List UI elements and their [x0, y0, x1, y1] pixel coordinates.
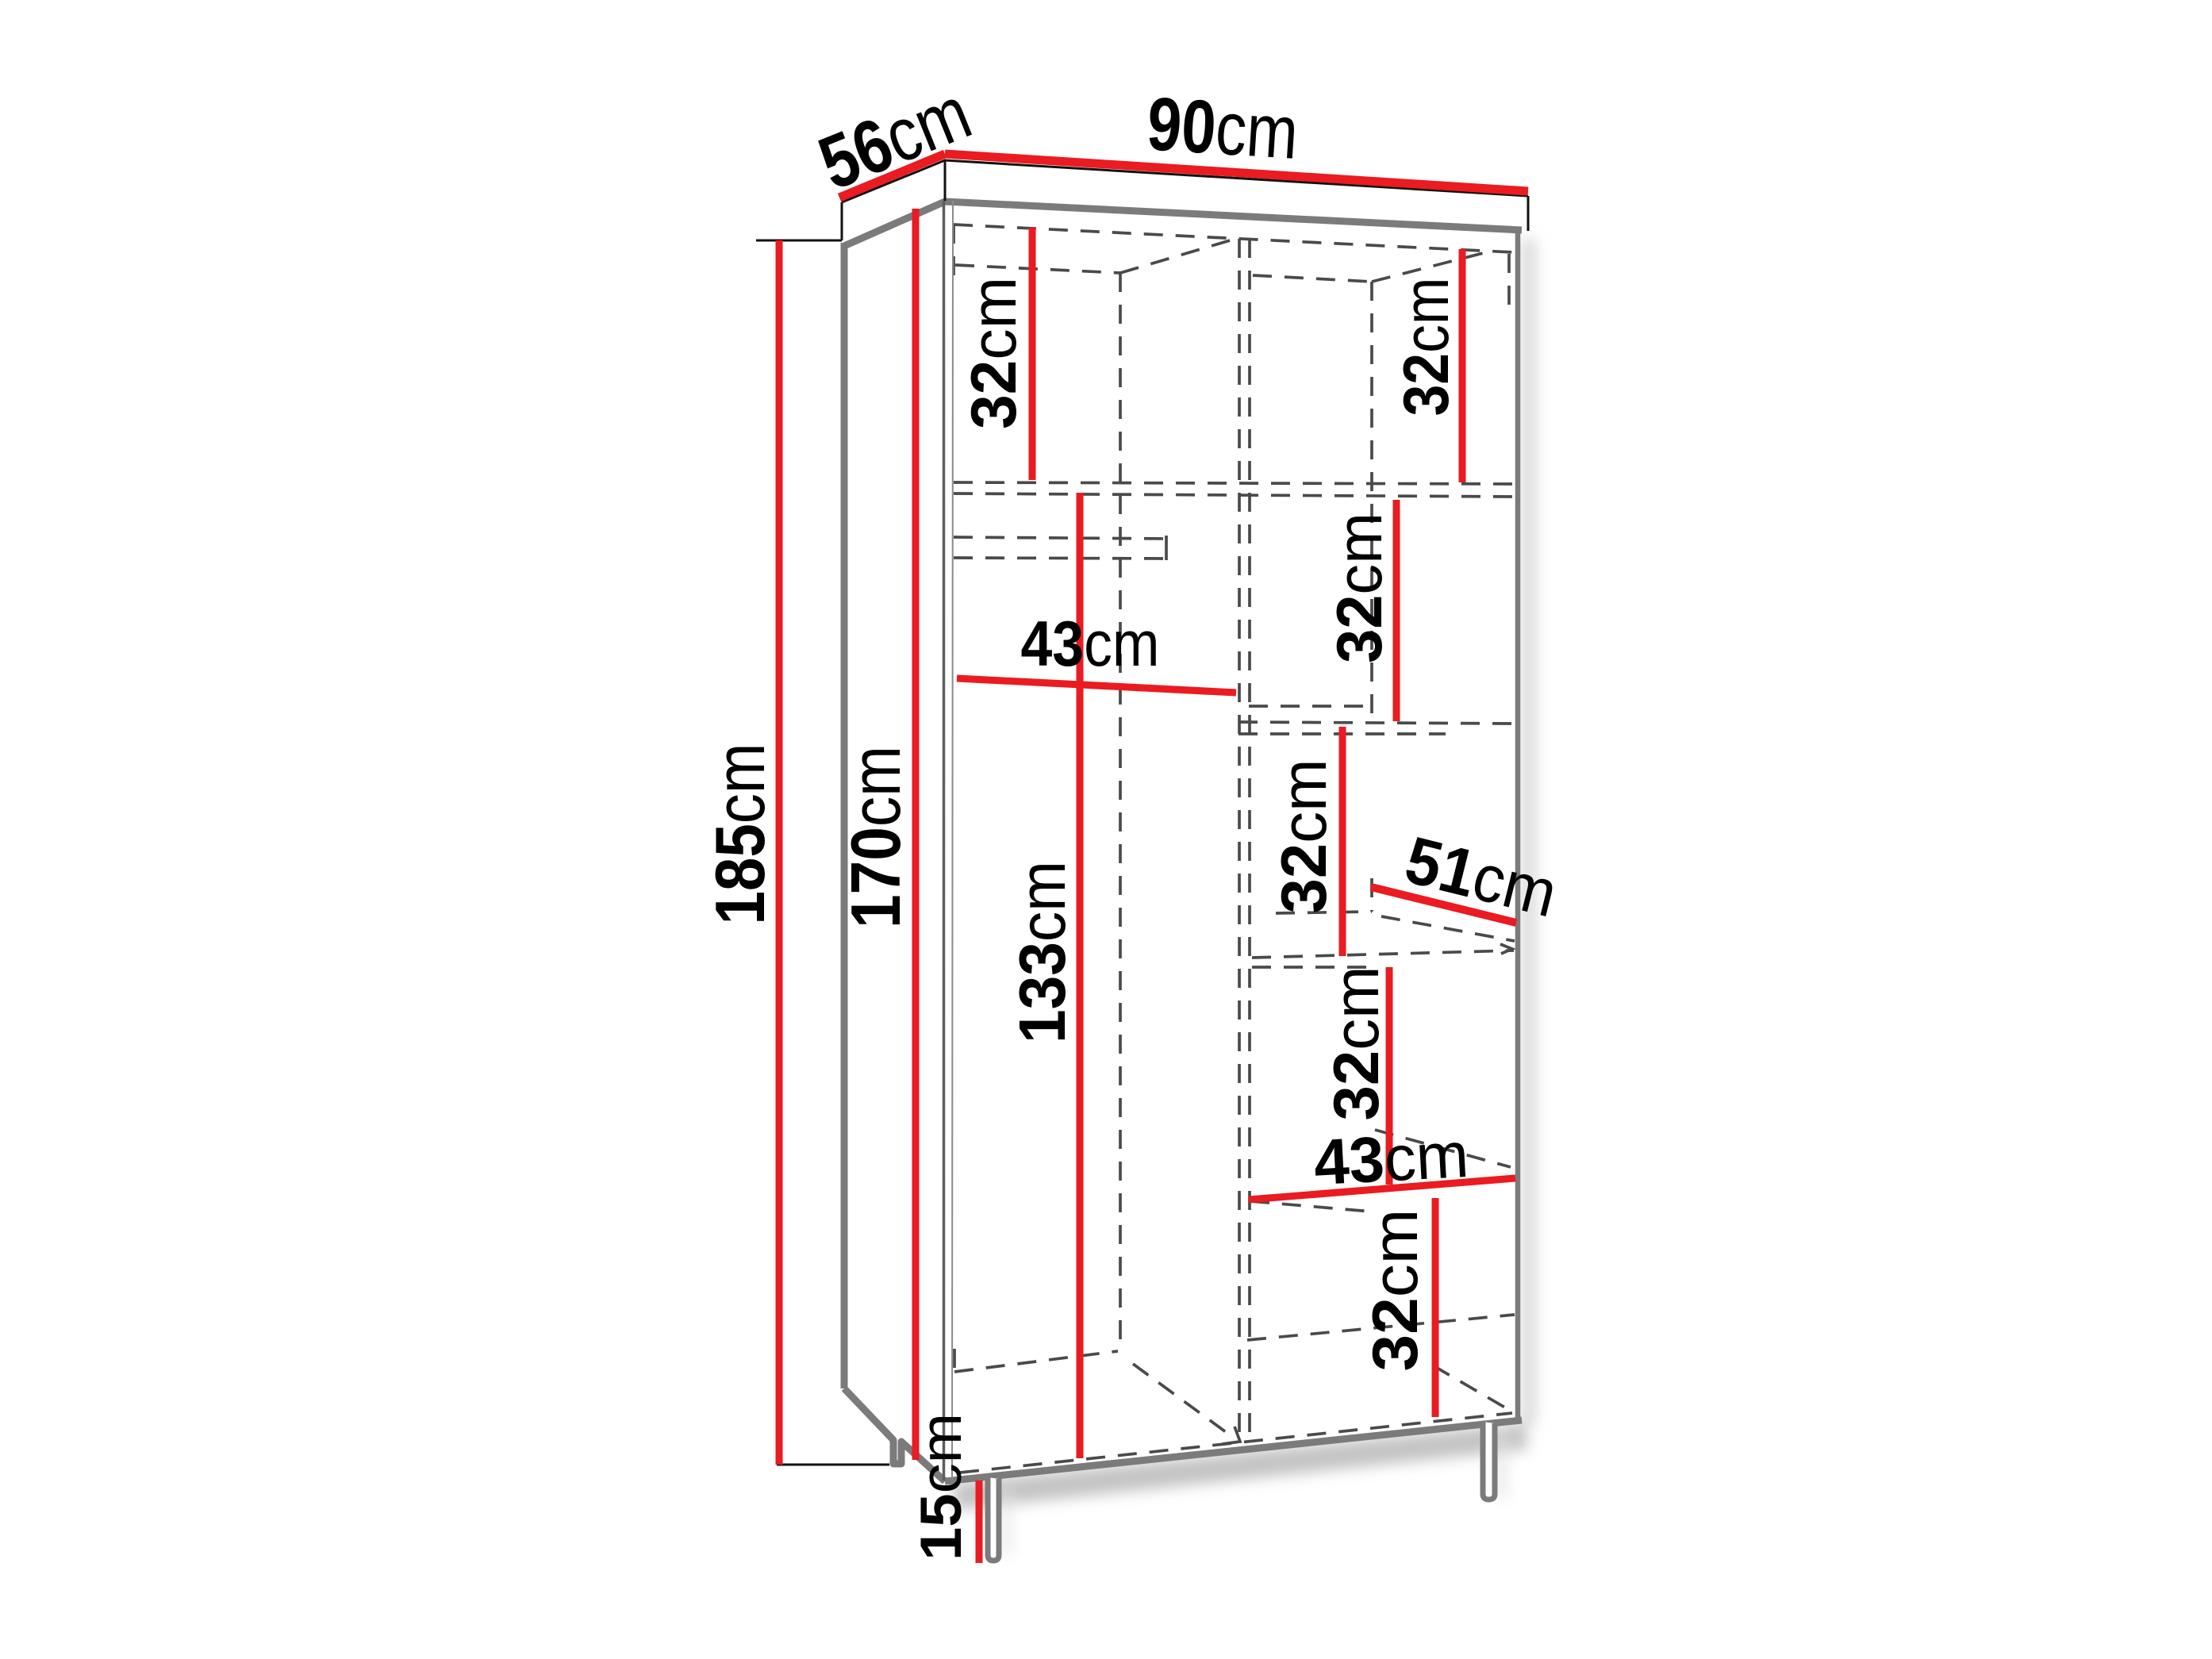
svg-text:15cm: 15cm: [909, 1413, 974, 1561]
svg-text:43cm: 43cm: [1021, 609, 1160, 680]
svg-text:90cm: 90cm: [1145, 82, 1300, 175]
svg-text:133cm: 133cm: [1005, 861, 1079, 1043]
svg-text:32cm: 32cm: [1360, 1209, 1431, 1372]
svg-text:32cm: 32cm: [958, 277, 1030, 429]
svg-text:32cm: 32cm: [1269, 759, 1340, 914]
svg-text:32cm: 32cm: [1391, 278, 1462, 417]
svg-text:32cm: 32cm: [1321, 966, 1392, 1121]
svg-text:170cm: 170cm: [836, 746, 915, 928]
svg-text:185cm: 185cm: [701, 743, 779, 925]
svg-text:43cm: 43cm: [1312, 1119, 1470, 1199]
svg-text:32cm: 32cm: [1324, 513, 1396, 663]
